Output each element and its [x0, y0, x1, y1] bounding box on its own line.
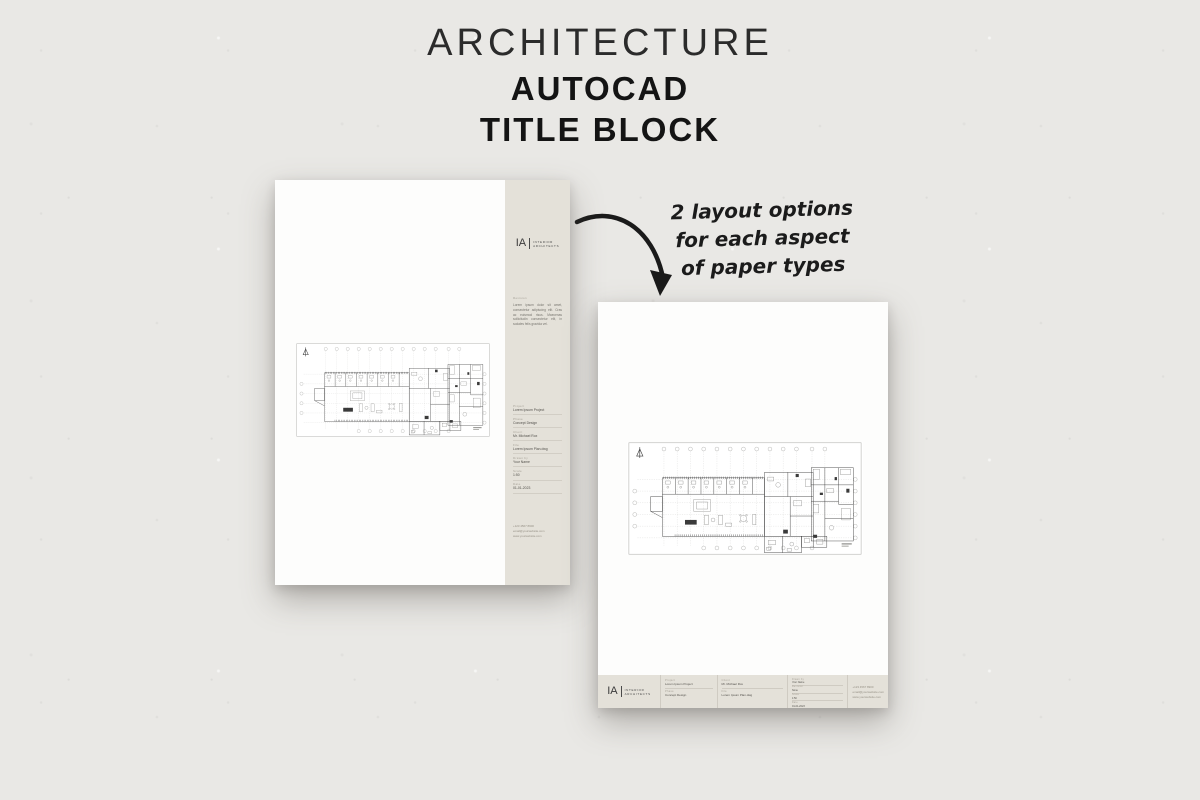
sheet-horizontal-titleblock: IA INTERIOR ARCHITECTS Project Lorem Ips… — [598, 302, 888, 708]
field-project: Project Lorem Ipsum Project — [665, 678, 713, 689]
field-value: Your Name — [792, 681, 844, 684]
field-client: Client Mr. Michael Rox — [513, 428, 562, 441]
brand-name-line2: ARCHITECTS — [625, 692, 651, 696]
page-heading: ARCHITECTURE AUTOCAD TITLE BLOCK — [0, 22, 1200, 149]
brand-logo: IA INTERIOR ARCHITECTS — [598, 675, 660, 708]
brand-logo: IA INTERIOR ARCHITECTS — [505, 238, 570, 249]
titleblock-vertical-strip: IA INTERIOR ARCHITECTS Revision Lorem ip… — [505, 180, 570, 585]
field-value: 1:50 — [792, 697, 844, 700]
heading-architecture: ARCHITECTURE — [0, 22, 1200, 65]
field-drawn-by: Drawn by Your Name — [792, 678, 844, 686]
brand-name: INTERIOR ARCHITECTS — [625, 688, 651, 696]
field-phase: Phase Concept Design — [665, 689, 713, 699]
field-value: 1:50 — [513, 473, 562, 478]
curved-arrow-icon — [573, 206, 677, 302]
field-value: None — [792, 689, 844, 692]
brand-name: INTERIOR ARCHITECTS — [533, 240, 559, 248]
heading-autocad: AUTOCAD — [0, 70, 1200, 108]
annotation-line-3: of paper types — [655, 249, 871, 283]
revision-block: Revision Lorem ipsum dolor sit amet, con… — [513, 296, 562, 327]
contact-website: www.yourwebsite.com — [513, 534, 562, 539]
field-value: Mr. Michael Rox — [722, 682, 783, 686]
handwritten-annotation: 2 layout options for each aspect of pape… — [654, 193, 871, 283]
revision-text: Lorem ipsum dolor sit amet, consectetur … — [513, 303, 562, 327]
field-value: Concept Design — [513, 421, 562, 426]
floor-plan-frame — [296, 343, 490, 437]
titleblock-horizontal-strip: IA INTERIOR ARCHITECTS Project Lorem Ips… — [598, 675, 888, 708]
floor-plan-frame — [627, 442, 863, 555]
floor-plan-drawing — [296, 343, 490, 437]
field-scale: Scale 1:50 — [513, 467, 562, 480]
field-file: File Lorem Ipsum Plan.dwg — [722, 689, 783, 699]
logo-divider — [621, 686, 622, 697]
field-value: 01-01-2023 — [792, 705, 844, 708]
field-value: Lorem Ipsum Plan.dwg — [513, 447, 562, 452]
field-scale: Scale 1:50 — [792, 694, 844, 702]
field-value: Lorem Ipsum Project — [513, 408, 562, 413]
field-value: Mr. Michael Rox — [513, 434, 562, 439]
field-client: Client Mr. Michael Rox — [722, 678, 783, 689]
fields-block: Project Lorem Ipsum Project Phase Concep… — [513, 402, 562, 494]
field-date: Date 01-01-2023 — [513, 481, 562, 494]
field-value: Lorem Ipsum Plan.dwg — [722, 693, 783, 697]
brand-initials: IA — [516, 238, 526, 249]
field-file: File Lorem Ipsum Plan.dwg — [513, 441, 562, 454]
field-drawn-by: Drawn by Your Name — [513, 454, 562, 467]
revision-label: Revision — [513, 296, 562, 300]
contact-block: +123 4567 8900 email@yourwebsite.com www… — [513, 524, 562, 539]
brand-initials: IA — [607, 686, 617, 697]
field-date: Date 01-01-2023 — [792, 701, 844, 708]
floor-plan-drawing — [627, 442, 863, 555]
field-value: 01-01-2023 — [513, 486, 562, 491]
sheet-vertical-titleblock: IA INTERIOR ARCHITECTS Revision Lorem ip… — [275, 180, 570, 585]
field-value: Lorem Ipsum Project — [665, 682, 713, 686]
field-revision: Revision None — [792, 686, 844, 694]
field-phase: Phase Concept Design — [513, 415, 562, 428]
titleblock-column-client: Client Mr. Michael Rox File Lorem Ipsum … — [717, 675, 787, 708]
field-value: Your Name — [513, 460, 562, 465]
contact-block: +123 4567 8900 email@yourwebsite.com www… — [847, 675, 888, 708]
heading-title-block: TITLE BLOCK — [0, 111, 1200, 149]
field-value: Concept Design — [665, 693, 713, 697]
logo-divider — [529, 238, 530, 249]
field-project: Project Lorem Ipsum Project — [513, 402, 562, 415]
contact-website: www.yourwebsite.com — [852, 695, 884, 700]
titleblock-column-meta: Drawn by Your Name Revision None Scale 1… — [787, 675, 848, 708]
titleblock-column-project: Project Lorem Ipsum Project Phase Concep… — [660, 675, 717, 708]
brand-name-line2: ARCHITECTS — [533, 244, 559, 248]
